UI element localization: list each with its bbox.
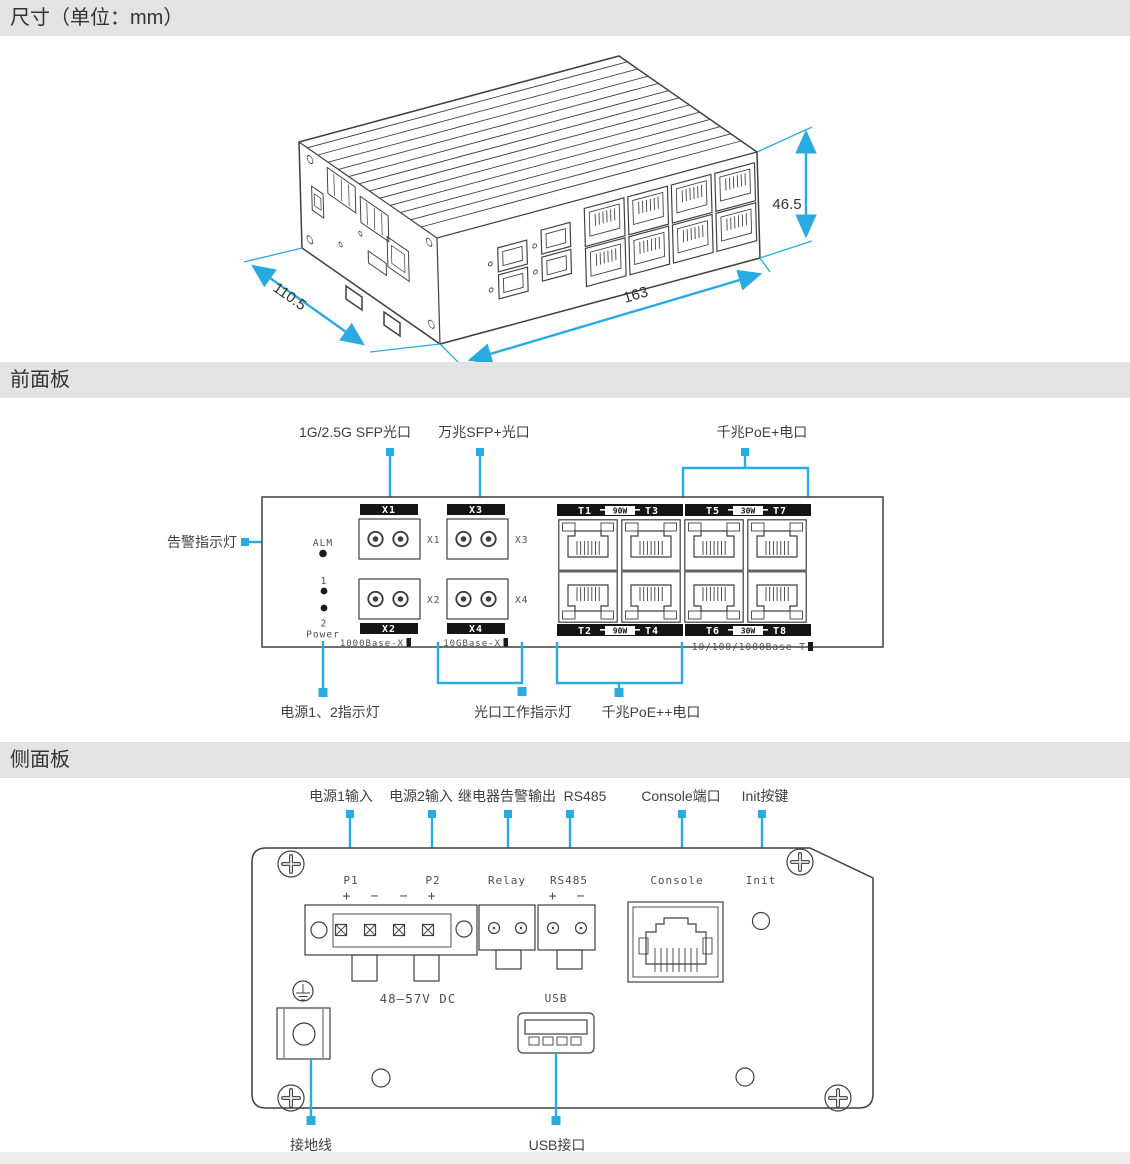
svg-text:T4: T4 (645, 626, 659, 637)
isometric-drawing: 46.5 110.5 163 (0, 36, 1130, 362)
svg-text:T1: T1 (578, 506, 592, 517)
document-page: 尺寸（单位：mm） 前面板 侧面板 (0, 0, 1130, 1164)
led1-label: 1 (321, 576, 328, 587)
svg-text:−: − (400, 889, 409, 904)
callout-optical-led: 光口工作指示灯 (474, 704, 572, 720)
std-10gbasex: 10GBase-X (443, 639, 501, 649)
callout-init: Init按键 (742, 788, 789, 804)
svg-text:−: − (371, 889, 380, 904)
svg-text:T5: T5 (706, 506, 720, 517)
led2-label: 2 (321, 619, 328, 630)
x4-bar-label: X4 (469, 624, 483, 635)
side-panel-diagram: 电源1输入 电源2输入 继电器告警输出 RS485 Console端口 Init… (0, 778, 1130, 1164)
x2-side-label: X2 (427, 595, 440, 606)
svg-text:+: + (549, 889, 558, 904)
alm-led (319, 550, 327, 558)
callout-ground: 接地线 (290, 1137, 332, 1153)
screw-bottom-right (825, 1085, 851, 1111)
init-label: Init (746, 874, 777, 887)
port-bar-t2-t4: T2 90W T4 (557, 624, 683, 637)
callout-power-led: 电源1、2指示灯 (280, 704, 380, 720)
dimension-height: 46.5 (772, 196, 801, 213)
svg-text:+: + (428, 889, 437, 904)
port-bar-t5-t7: T5 30W T7 (685, 504, 811, 517)
svg-text:90W: 90W (613, 627, 628, 636)
dimension-depth: 110.5 (270, 279, 310, 314)
power-label: Power (306, 630, 340, 641)
svg-text:T8: T8 (773, 626, 787, 637)
std-1000basex: 1000Base-X (340, 639, 404, 649)
usb-label: USB (545, 992, 568, 1005)
svg-text:30W: 30W (741, 507, 756, 516)
callout-poe-pp: 千兆PoE++电口 (602, 704, 701, 720)
section-header-dimensions: 尺寸（单位：mm） (0, 0, 1130, 36)
alm-label: ALM (313, 538, 333, 549)
page-bottom-strip (0, 1152, 1130, 1164)
svg-text:30W: 30W (741, 627, 756, 636)
svg-text:−: − (577, 889, 586, 904)
section-header-front-panel: 前面板 (0, 362, 1130, 398)
x4-side-label: X4 (515, 595, 528, 606)
svg-text:+: + (343, 889, 352, 904)
callout-sfp-10g: 万兆SFP+光口 (438, 424, 529, 440)
p1-label: P1 (343, 874, 358, 887)
front-callouts-bottom: 电源1、2指示灯 光口工作指示灯 千兆PoE++电口 (280, 641, 700, 720)
console-label: Console (650, 874, 703, 887)
relay-label: Relay (488, 874, 526, 887)
port-bar-t6-t8: T6 30W T8 (685, 624, 811, 637)
x1-side-label: X1 (427, 535, 440, 546)
side-panel-outline (252, 848, 873, 1108)
device-body (299, 56, 760, 344)
callout-usb: USB接口 (529, 1137, 586, 1153)
std-1000baset: 10/100/1000Base-T (692, 642, 806, 653)
front-panel-diagram: 1G/2.5G SFP光口 万兆SFP+光口 千兆PoE+电口 告警指示灯 AL… (0, 398, 1130, 742)
callout-sfp-1g: 1G/2.5G SFP光口 (299, 424, 411, 440)
svg-text:T6: T6 (706, 626, 720, 637)
callout-rs485: RS485 (564, 788, 607, 804)
voltage-label: 48–57V DC (380, 991, 457, 1006)
front-callouts-top: 1G/2.5G SFP光口 万兆SFP+光口 千兆PoE+电口 (299, 424, 808, 504)
screw-top-left (278, 851, 304, 877)
callout-alarm-label: 告警指示灯 (167, 534, 237, 550)
svg-text:T3: T3 (645, 506, 659, 517)
svg-text:T7: T7 (773, 506, 787, 517)
callout-poe-plus: 千兆PoE+电口 (717, 424, 808, 440)
port-bar-t1-t3: T1 90W T3 (557, 504, 683, 517)
screw-top-right (787, 849, 813, 875)
screw-bottom-left (278, 1085, 304, 1111)
callout-power1-in: 电源1输入 (309, 788, 373, 804)
callout-power2-in: 电源2输入 (389, 788, 453, 804)
p2-label: P2 (425, 874, 440, 887)
power1-led (321, 588, 328, 595)
power2-led (321, 605, 328, 612)
svg-text:90W: 90W (613, 507, 628, 516)
callout-relay-out: 继电器告警输出 (458, 788, 556, 804)
x3-bar-label: X3 (469, 505, 483, 516)
section-header-side-panel: 侧面板 (0, 742, 1130, 778)
rs485-label: RS485 (550, 874, 588, 887)
x3-side-label: X3 (515, 535, 528, 546)
callout-console: Console端口 (641, 788, 720, 804)
x1-bar-label: X1 (382, 505, 396, 516)
x2-bar-label: X2 (382, 624, 396, 635)
svg-text:T2: T2 (578, 626, 592, 637)
